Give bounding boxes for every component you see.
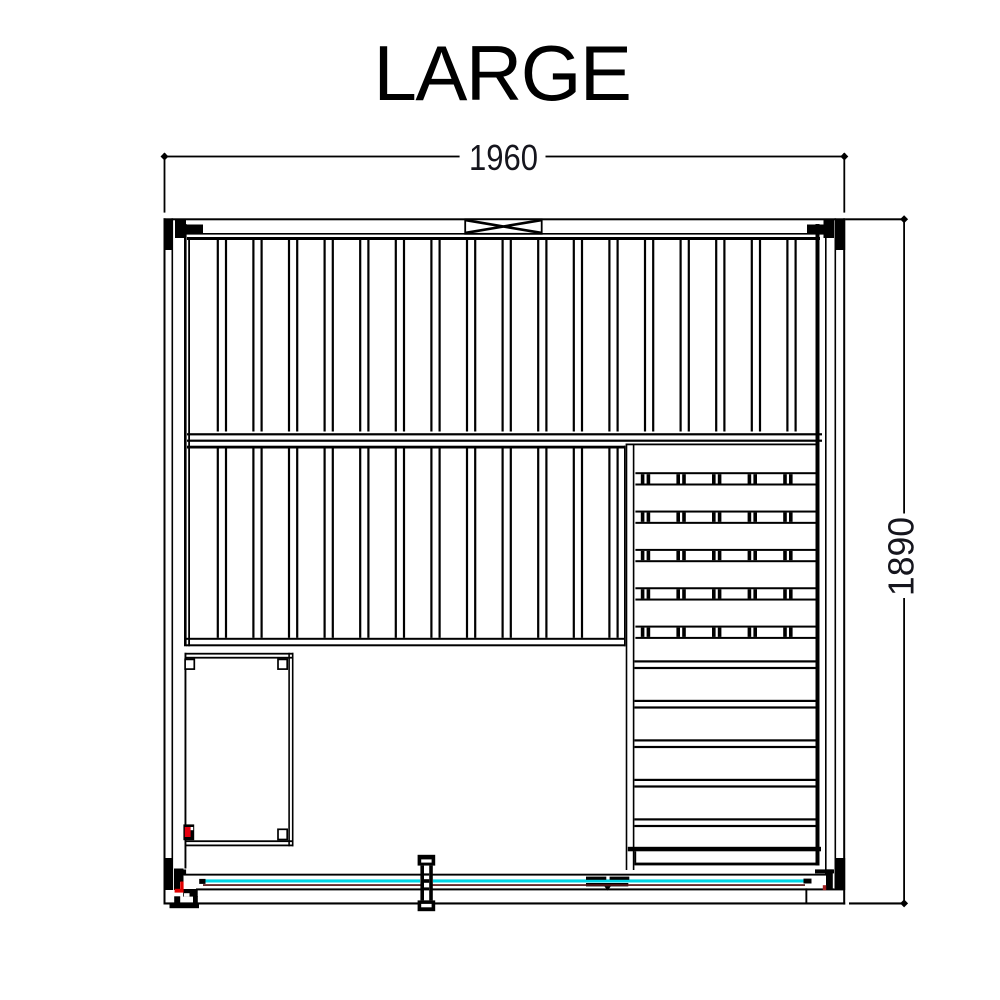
svg-text:1960: 1960: [469, 138, 538, 179]
svg-text:1890: 1890: [880, 517, 922, 596]
svg-text:LARGE: LARGE: [374, 29, 631, 117]
